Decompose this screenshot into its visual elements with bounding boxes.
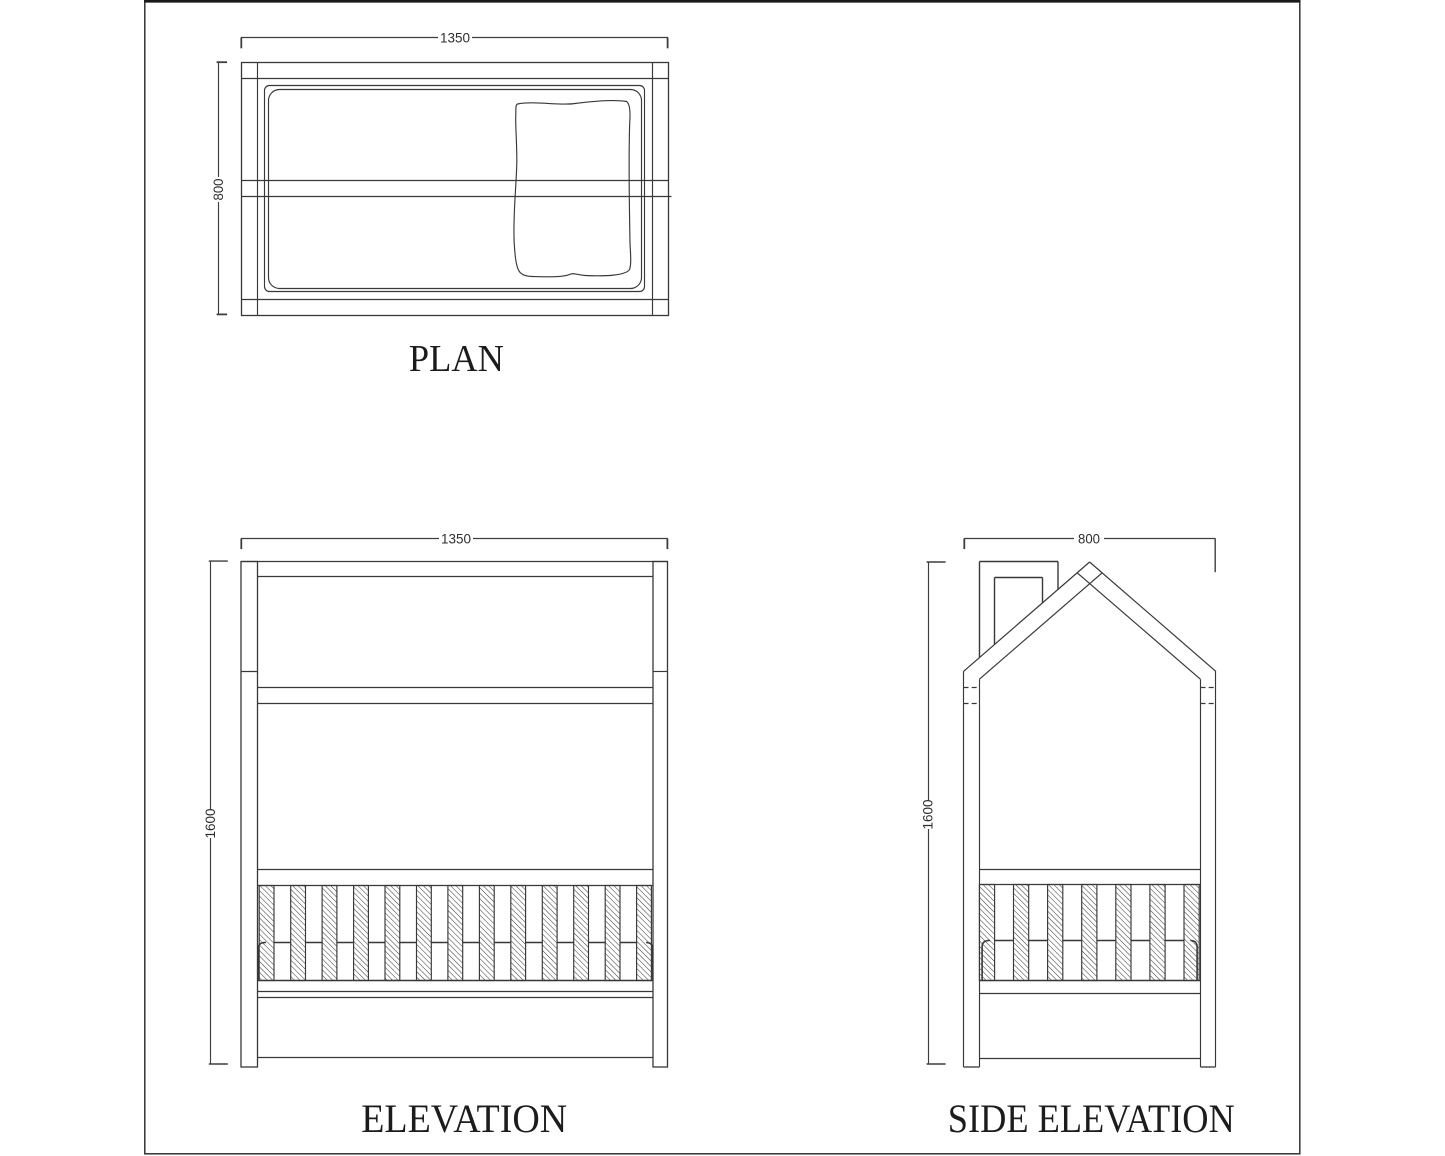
svg-text:ELEVATION: ELEVATION (361, 1096, 567, 1141)
svg-text:800: 800 (211, 179, 226, 201)
svg-text:1350: 1350 (440, 30, 470, 46)
svg-text:PLAN: PLAN (409, 338, 504, 380)
svg-text:SIDE ELEVATION: SIDE ELEVATION (948, 1096, 1235, 1141)
svg-text:1350: 1350 (441, 530, 471, 546)
svg-text:1600: 1600 (203, 809, 218, 839)
svg-text:800: 800 (1078, 530, 1100, 546)
svg-text:1600: 1600 (921, 800, 936, 830)
